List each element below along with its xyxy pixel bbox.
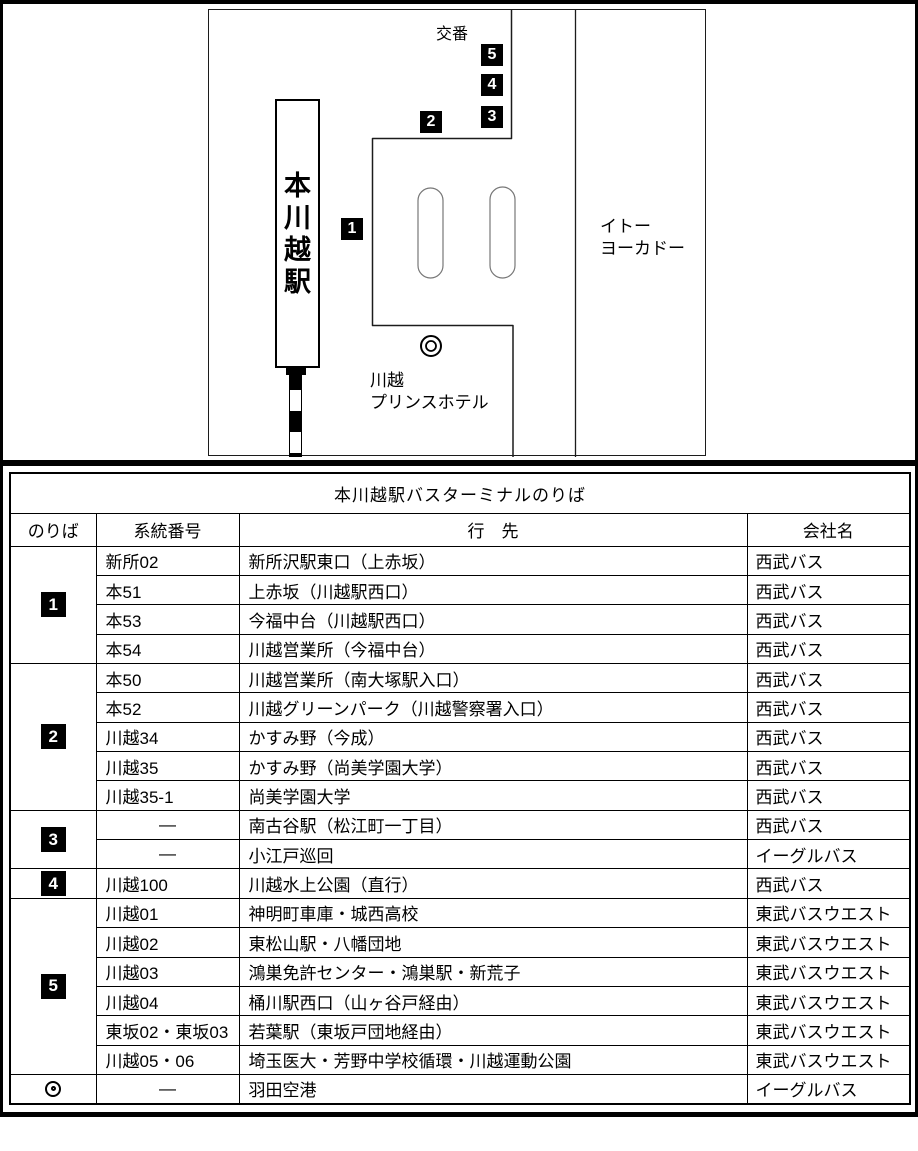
destination-cell: 鴻巣免許センター・鴻巣駅・新荒子 bbox=[239, 957, 747, 986]
table-row: 本54川越営業所（今福中台）西武バス bbox=[10, 634, 910, 663]
store-label-line1: イトー bbox=[600, 216, 685, 238]
table-row: 川越03鴻巣免許センター・鴻巣駅・新荒子東武バスウエスト bbox=[10, 957, 910, 986]
header-platform: のりば bbox=[10, 513, 96, 546]
terminal-map-drawing: 本川越駅 1 2 3 4 5 交番 イトー ヨーカドー 川越 プリンスホテル bbox=[208, 9, 706, 456]
bus-terminal-notice: { "map": { "station": "本川越駅", "police_bo… bbox=[0, 0, 918, 1151]
timetable-section: 本川越駅バスターミナルのりば のりば 系統番号 行 先 会社名 1新所02新所沢… bbox=[0, 466, 918, 1117]
route-cell: 新所02 bbox=[96, 546, 239, 575]
company-cell: 西武バス bbox=[747, 663, 910, 692]
table-row: 本53今福中台（川越駅西口）西武バス bbox=[10, 605, 910, 634]
route-cell: — bbox=[96, 1074, 239, 1104]
company-cell: 西武バス bbox=[747, 546, 910, 575]
destination-cell: 川越営業所（南大塚駅入口） bbox=[239, 663, 747, 692]
table-row: —羽田空港イーグルバス bbox=[10, 1074, 910, 1104]
destination-cell: 今福中台（川越駅西口） bbox=[239, 605, 747, 634]
map-stop-marker-2: 2 bbox=[420, 111, 442, 133]
platform-cell: 4 bbox=[10, 869, 96, 898]
station-label-char: 川 bbox=[284, 204, 311, 232]
station-label-char: 本 bbox=[284, 172, 311, 200]
table-title-row: 本川越駅バスターミナルのりば bbox=[10, 473, 910, 513]
route-cell: 東坂02・東坂03 bbox=[96, 1016, 239, 1045]
destination-cell: 若葉駅（東坂戸団地経由） bbox=[239, 1016, 747, 1045]
company-cell: 東武バスウエスト bbox=[747, 957, 910, 986]
platform-cell bbox=[10, 1074, 96, 1104]
table-row: 本51上赤坂（川越駅西口）西武バス bbox=[10, 575, 910, 604]
destination-cell: 南古谷駅（松江町一丁目） bbox=[239, 810, 747, 839]
route-cell: 本54 bbox=[96, 634, 239, 663]
route-cell: 川越04 bbox=[96, 986, 239, 1015]
map-stop-marker-5: 5 bbox=[481, 44, 503, 66]
table-row: 川越02東松山駅・八幡団地東武バスウエスト bbox=[10, 928, 910, 957]
route-cell: 川越05・06 bbox=[96, 1045, 239, 1074]
company-cell: 西武バス bbox=[747, 634, 910, 663]
platform-cell: 1 bbox=[10, 546, 96, 663]
platform-cell: 5 bbox=[10, 898, 96, 1074]
company-cell: 東武バスウエスト bbox=[747, 928, 910, 957]
bus-table-body: 1新所02新所沢駅東口（上赤坂）西武バス本51上赤坂（川越駅西口）西武バス本53… bbox=[10, 546, 910, 1104]
railway-track-icon bbox=[289, 368, 302, 457]
company-cell: 東武バスウエスト bbox=[747, 986, 910, 1015]
route-cell: 本53 bbox=[96, 605, 239, 634]
map-stop-marker-3: 3 bbox=[481, 106, 503, 128]
destination-cell: かすみ野（尚美学園大学） bbox=[239, 752, 747, 781]
table-row: 川越35-1尚美学園大学西武バス bbox=[10, 781, 910, 810]
terminal-map-section: 本川越駅 1 2 3 4 5 交番 イトー ヨーカドー 川越 プリンスホテル bbox=[0, 0, 918, 466]
company-cell: 西武バス bbox=[747, 575, 910, 604]
route-cell: — bbox=[96, 840, 239, 869]
company-cell: 西武バス bbox=[747, 693, 910, 722]
table-row: 川越34かすみ野（今成）西武バス bbox=[10, 722, 910, 751]
table-title: 本川越駅バスターミナルのりば bbox=[10, 473, 910, 513]
rotary-stop-icon-inner bbox=[51, 1086, 56, 1091]
company-cell: イーグルバス bbox=[747, 1074, 910, 1104]
platform-number-badge: 3 bbox=[41, 827, 66, 852]
table-row: 川越35かすみ野（尚美学園大学）西武バス bbox=[10, 752, 910, 781]
destination-cell: 神明町車庫・城西高校 bbox=[239, 898, 747, 927]
table-row: 4川越100川越水上公園（直行）西武バス bbox=[10, 869, 910, 898]
hotel-label-line2: プリンスホテル bbox=[370, 392, 489, 414]
platform-number-badge: 2 bbox=[41, 724, 66, 749]
destination-cell: 埼玉医大・芳野中学校循環・川越運動公園 bbox=[239, 1045, 747, 1074]
table-row: 川越04桶川駅西口（山ヶ谷戸経由）東武バスウエスト bbox=[10, 986, 910, 1015]
destination-cell: 川越グリーンパーク（川越警察署入口） bbox=[239, 693, 747, 722]
table-row: 5川越01神明町車庫・城西高校東武バスウエスト bbox=[10, 898, 910, 927]
table-row: 1新所02新所沢駅東口（上赤坂）西武バス bbox=[10, 546, 910, 575]
table-row: 3—南古谷駅（松江町一丁目）西武バス bbox=[10, 810, 910, 839]
rotary-stop-inner-circle bbox=[426, 341, 436, 351]
destination-cell: 尚美学園大学 bbox=[239, 781, 747, 810]
rotary-stop-icon bbox=[45, 1081, 61, 1097]
table-row: 東坂02・東坂03若葉駅（東坂戸団地経由）東武バスウエスト bbox=[10, 1016, 910, 1045]
hotel-label-line1: 川越 bbox=[370, 370, 489, 392]
table-header-row: のりば 系統番号 行 先 会社名 bbox=[10, 513, 910, 546]
route-cell: 本51 bbox=[96, 575, 239, 604]
company-cell: 西武バス bbox=[747, 605, 910, 634]
platform-number-badge: 1 bbox=[41, 592, 66, 617]
header-route-number: 系統番号 bbox=[96, 513, 239, 546]
platform-number-badge: 5 bbox=[41, 974, 66, 999]
company-cell: 東武バスウエスト bbox=[747, 1016, 910, 1045]
header-company: 会社名 bbox=[747, 513, 910, 546]
company-cell: 西武バス bbox=[747, 722, 910, 751]
bus-bay-slot-right bbox=[490, 187, 515, 278]
platform-cell: 2 bbox=[10, 663, 96, 810]
table-row: 本52川越グリーンパーク（川越警察署入口）西武バス bbox=[10, 693, 910, 722]
route-cell: 川越34 bbox=[96, 722, 239, 751]
destination-cell: 羽田空港 bbox=[239, 1074, 747, 1104]
company-cell: 東武バスウエスト bbox=[747, 1045, 910, 1074]
police-box-label: 交番 bbox=[436, 24, 468, 46]
bus-bay-slot-left bbox=[418, 188, 443, 278]
route-cell: — bbox=[96, 810, 239, 839]
table-row: —小江戸巡回イーグルバス bbox=[10, 840, 910, 869]
table-row: 川越05・06埼玉医大・芳野中学校循環・川越運動公園東武バスウエスト bbox=[10, 1045, 910, 1074]
table-row: 2本50川越営業所（南大塚駅入口）西武バス bbox=[10, 663, 910, 692]
destination-cell: 川越水上公園（直行） bbox=[239, 869, 747, 898]
company-cell: イーグルバス bbox=[747, 840, 910, 869]
store-label: イトー ヨーカドー bbox=[600, 216, 685, 260]
destination-cell: 川越営業所（今福中台） bbox=[239, 634, 747, 663]
route-cell: 川越35-1 bbox=[96, 781, 239, 810]
destination-cell: 桶川駅西口（山ヶ谷戸経由） bbox=[239, 986, 747, 1015]
destination-cell: 新所沢駅東口（上赤坂） bbox=[239, 546, 747, 575]
route-cell: 川越03 bbox=[96, 957, 239, 986]
station-building: 本川越駅 bbox=[275, 99, 320, 368]
route-cell: 川越01 bbox=[96, 898, 239, 927]
map-stop-marker-1: 1 bbox=[341, 218, 363, 240]
company-cell: 西武バス bbox=[747, 781, 910, 810]
destination-cell: 上赤坂（川越駅西口） bbox=[239, 575, 747, 604]
company-cell: 東武バスウエスト bbox=[747, 898, 910, 927]
platform-number-badge: 4 bbox=[41, 871, 66, 896]
route-cell: 川越100 bbox=[96, 869, 239, 898]
company-cell: 西武バス bbox=[747, 752, 910, 781]
destination-cell: 小江戸巡回 bbox=[239, 840, 747, 869]
destination-cell: 東松山駅・八幡団地 bbox=[239, 928, 747, 957]
header-destination: 行 先 bbox=[239, 513, 747, 546]
route-cell: 川越35 bbox=[96, 752, 239, 781]
rotary-stop-outer-circle bbox=[421, 336, 441, 356]
station-label-char: 越 bbox=[284, 236, 311, 264]
company-cell: 西武バス bbox=[747, 810, 910, 839]
bus-platform-table: 本川越駅バスターミナルのりば のりば 系統番号 行 先 会社名 1新所02新所沢… bbox=[9, 472, 911, 1105]
route-cell: 本50 bbox=[96, 663, 239, 692]
destination-cell: かすみ野（今成） bbox=[239, 722, 747, 751]
route-cell: 本52 bbox=[96, 693, 239, 722]
route-cell: 川越02 bbox=[96, 928, 239, 957]
company-cell: 西武バス bbox=[747, 869, 910, 898]
map-stop-marker-4: 4 bbox=[481, 74, 503, 96]
station-label-char: 駅 bbox=[284, 268, 311, 296]
platform-cell: 3 bbox=[10, 810, 96, 869]
hotel-label: 川越 プリンスホテル bbox=[370, 370, 489, 414]
store-label-line2: ヨーカドー bbox=[600, 238, 685, 260]
